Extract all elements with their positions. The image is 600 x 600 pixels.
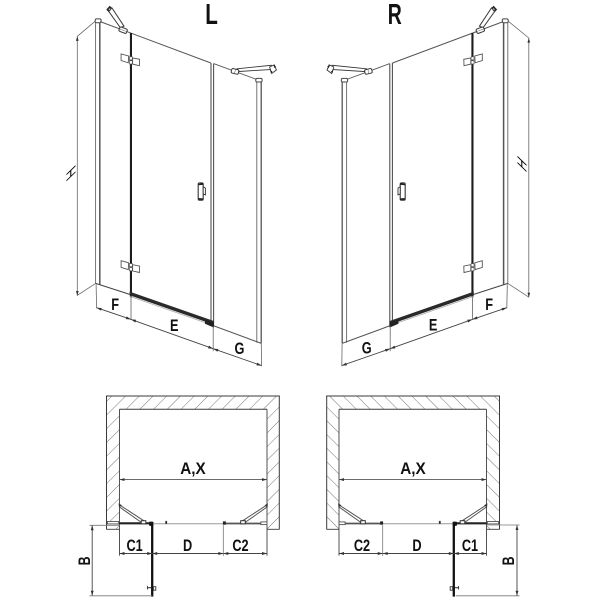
svg-text:G: G [362,339,372,358]
svg-text:C1: C1 [462,536,478,555]
svg-text:D: D [412,536,421,555]
svg-text:A,X: A,X [180,459,206,478]
svg-text:B: B [77,556,95,565]
svg-text:F: F [111,295,119,314]
svg-text:G: G [235,339,245,358]
svg-text:E: E [429,316,437,335]
svg-text:F: F [485,295,493,314]
svg-text:C2: C2 [232,536,248,555]
svg-text:L: L [205,0,218,31]
svg-text:B: B [500,556,518,565]
svg-text:C1: C1 [126,536,142,555]
svg-text:E: E [170,316,178,335]
svg-text:C2: C2 [354,536,370,555]
svg-text:D: D [183,536,192,555]
svg-text:R: R [388,0,402,31]
svg-text:A,X: A,X [400,459,426,478]
